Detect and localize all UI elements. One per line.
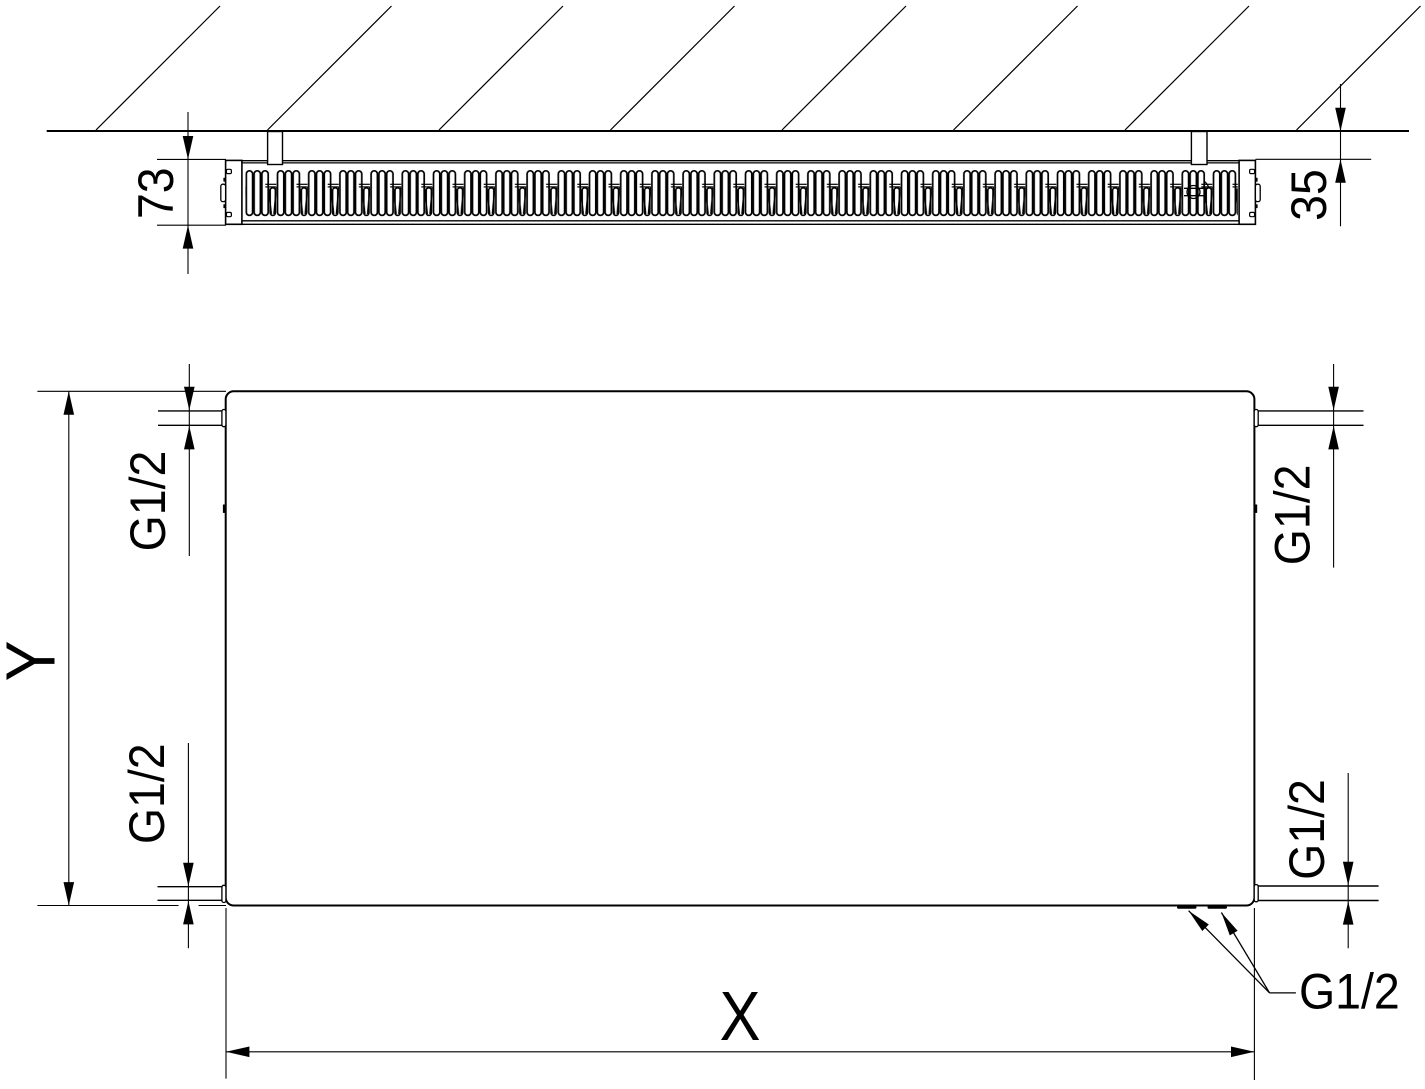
svg-text:G1/2: G1/2	[120, 451, 176, 552]
svg-text:Y: Y	[0, 641, 69, 682]
svg-text:35: 35	[1281, 169, 1337, 221]
svg-text:G1/2: G1/2	[119, 743, 175, 844]
svg-text:X: X	[720, 976, 761, 1055]
svg-text:73: 73	[128, 167, 184, 219]
svg-text:G1/2: G1/2	[1299, 964, 1400, 1020]
svg-text:G1/2: G1/2	[1265, 465, 1321, 566]
svg-text:G1/2: G1/2	[1279, 779, 1335, 880]
